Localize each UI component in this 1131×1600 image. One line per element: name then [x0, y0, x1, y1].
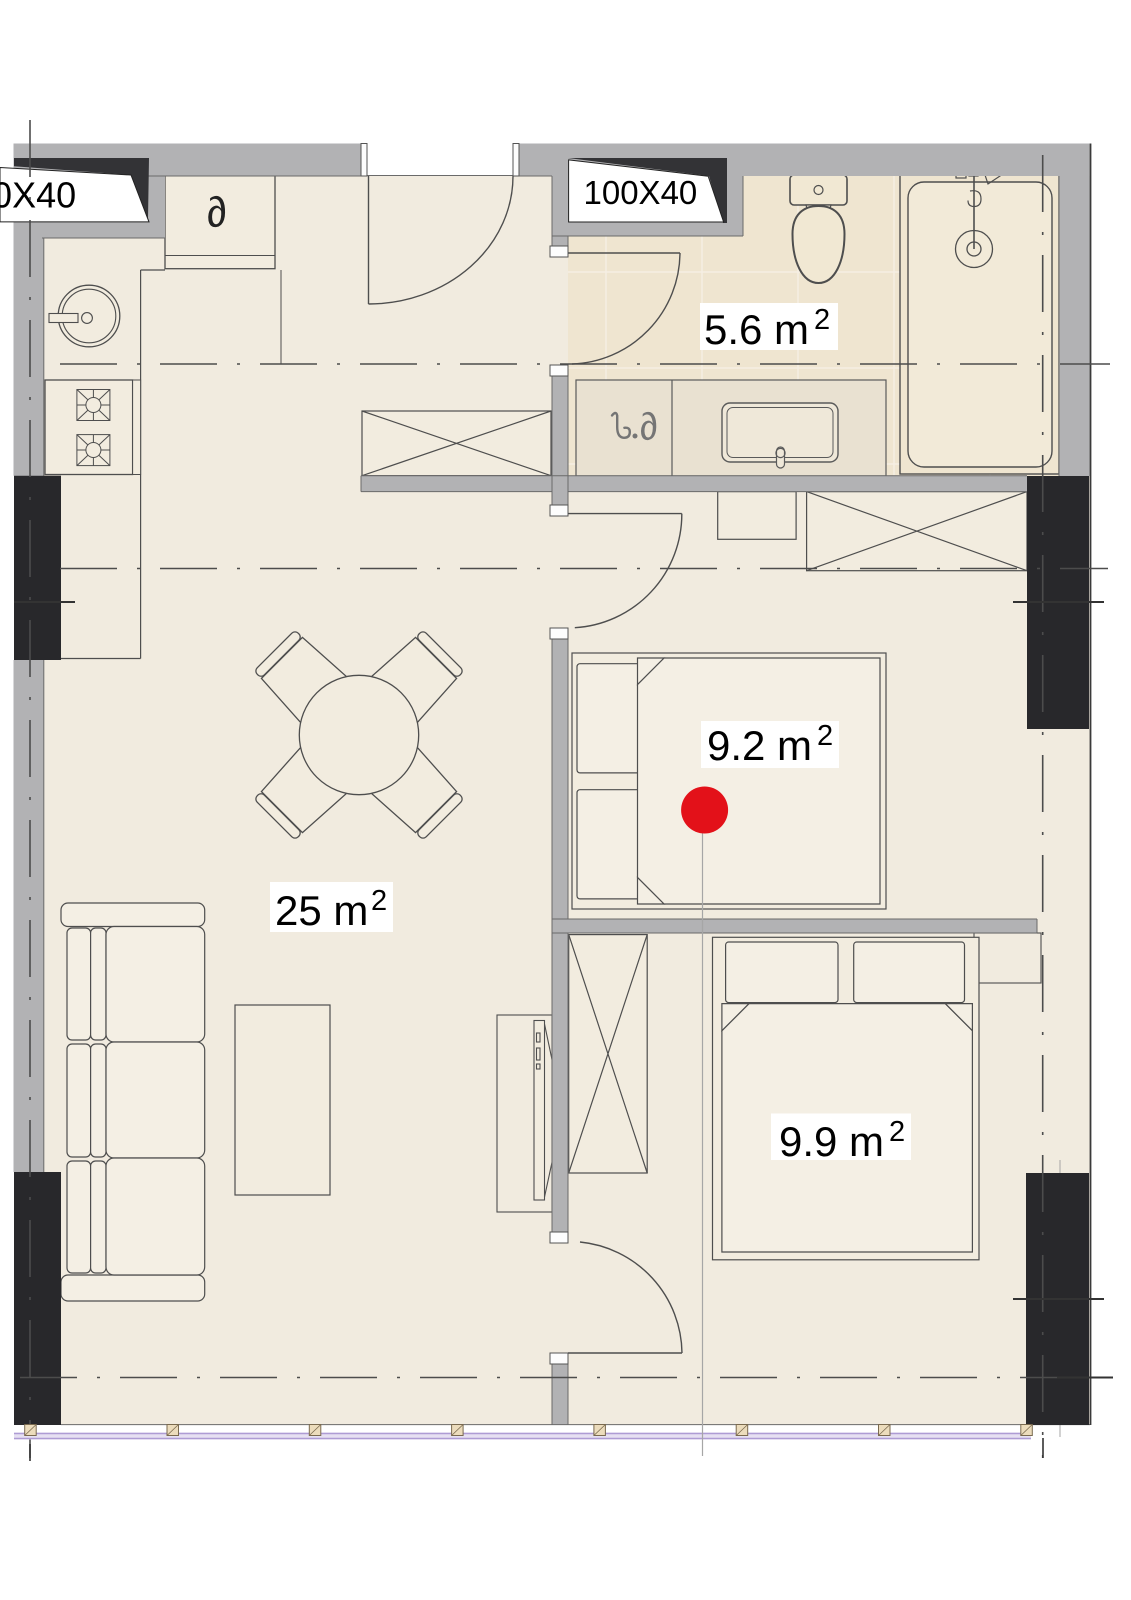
svg-text:9.9 m: 9.9 m — [779, 1118, 884, 1165]
svg-text:2: 2 — [814, 304, 830, 336]
svg-text:2: 2 — [817, 720, 833, 752]
svg-text:100X40: 100X40 — [584, 174, 698, 211]
svg-text:2: 2 — [889, 1116, 905, 1148]
svg-text:25 m: 25 m — [275, 887, 368, 934]
svg-text:100X40: 100X40 — [0, 175, 76, 216]
svg-text:5.6 m: 5.6 m — [704, 306, 809, 353]
svg-text:9.2 m: 9.2 m — [707, 722, 812, 769]
svg-text:2: 2 — [371, 885, 387, 917]
